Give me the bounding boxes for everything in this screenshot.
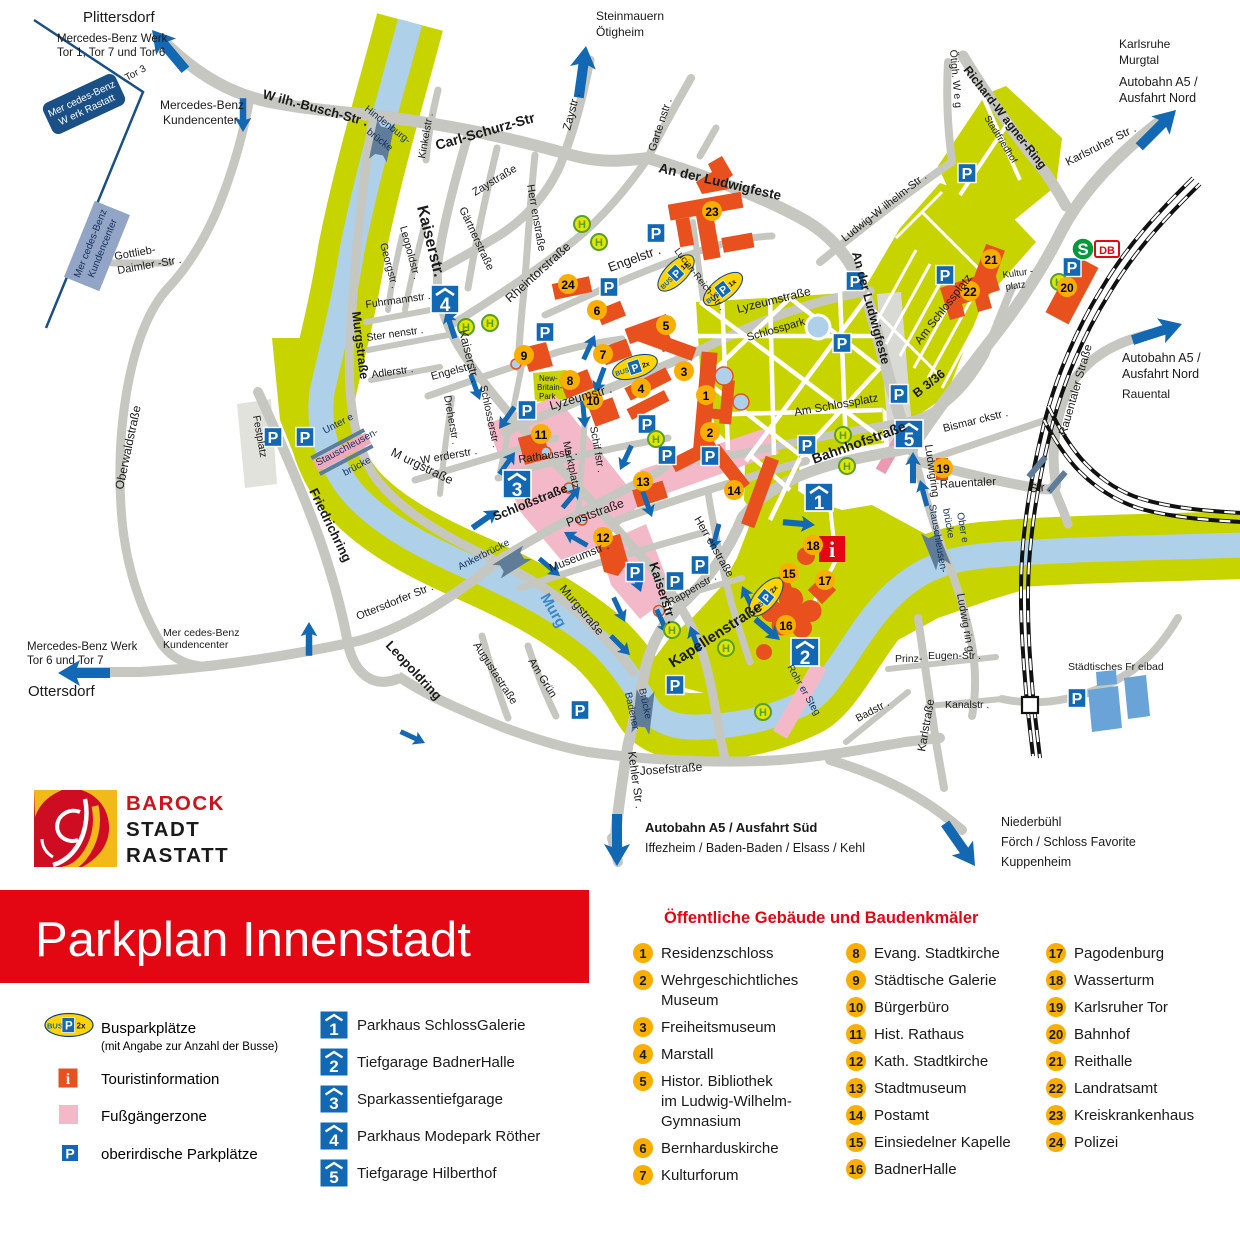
svg-text:Mer cedes-Benz: Mer cedes-Benz [163, 627, 239, 639]
svg-text:Mercedes-Benz Werk: Mercedes-Benz Werk [27, 641, 138, 653]
svg-text:17: 17 [1049, 946, 1063, 961]
svg-text:3: 3 [329, 1094, 338, 1113]
svg-text:23: 23 [1049, 1108, 1063, 1123]
svg-text:8: 8 [567, 374, 574, 388]
svg-text:Pagodenburg: Pagodenburg [1074, 945, 1164, 962]
svg-text:Marstall: Marstall [661, 1046, 714, 1063]
svg-text:11: 11 [535, 428, 548, 442]
svg-text:14: 14 [849, 1108, 864, 1123]
svg-text:Bürgerbüro: Bürgerbüro [874, 999, 949, 1016]
svg-text:17: 17 [818, 574, 832, 588]
svg-text:Förch / Schloss Favorite: Förch / Schloss Favorite [1001, 835, 1136, 849]
svg-text:Karlsruher Tor: Karlsruher Tor [1074, 999, 1168, 1016]
svg-text:9: 9 [852, 973, 859, 988]
svg-text:Hist. Rathaus: Hist. Rathaus [874, 1026, 964, 1043]
svg-text:2x: 2x [77, 1022, 86, 1031]
svg-text:(mit Angabe zur Anzahl der Bus: (mit Angabe zur Anzahl der Busse) [101, 1041, 278, 1053]
svg-text:Niederbühl: Niederbühl [1001, 815, 1061, 829]
svg-text:Kanalstr .: Kanalstr . [945, 699, 989, 711]
svg-text:Kundencenter: Kundencenter [163, 639, 229, 651]
svg-text:Städtische Galerie: Städtische Galerie [874, 972, 997, 989]
svg-text:Ausfahrt Nord: Ausfahrt Nord [1119, 91, 1196, 105]
svg-text:Stadtmuseum: Stadtmuseum [874, 1080, 967, 1097]
svg-text:im Ludwig-Wilhelm-: im Ludwig-Wilhelm- [661, 1093, 792, 1110]
svg-text:1: 1 [639, 946, 646, 961]
svg-text:21: 21 [984, 253, 998, 267]
svg-text:Iffezheim / Baden-Baden / Elsa: Iffezheim / Baden-Baden / Elsass / Kehl [645, 841, 865, 855]
svg-text:Eugen-Str .: Eugen-Str . [928, 650, 981, 662]
svg-text:Kreiskrankenhaus: Kreiskrankenhaus [1074, 1107, 1194, 1124]
svg-text:Histor. Bibliothek: Histor. Bibliothek [661, 1073, 773, 1090]
svg-text:6: 6 [594, 304, 601, 318]
svg-text:13: 13 [849, 1081, 863, 1096]
svg-text:S: S [1077, 240, 1088, 259]
svg-text:i: i [829, 537, 835, 562]
svg-text:5: 5 [663, 319, 670, 333]
svg-text:9: 9 [521, 349, 528, 363]
svg-text:Parkhaus SchlossGalerie: Parkhaus SchlossGalerie [357, 1017, 525, 1034]
svg-text:Rauental: Rauental [1122, 387, 1170, 401]
svg-text:Ottersdorf: Ottersdorf [28, 683, 96, 700]
svg-text:12: 12 [849, 1054, 863, 1069]
svg-text:1: 1 [814, 493, 825, 514]
svg-text:2: 2 [639, 973, 646, 988]
svg-text:14: 14 [727, 484, 741, 498]
svg-text:Str .: Str . [1030, 482, 1052, 495]
svg-text:21: 21 [1049, 1054, 1063, 1069]
svg-text:Mercedes-Benz Werk: Mercedes-Benz Werk [57, 33, 168, 45]
svg-text:5: 5 [639, 1074, 646, 1089]
svg-text:Touristinformation: Touristinformation [101, 1071, 219, 1088]
svg-text:Postamt: Postamt [874, 1107, 930, 1124]
svg-text:Gymnasium: Gymnasium [661, 1113, 741, 1130]
svg-text:Tor 1, Tor 7 und Tor 6: Tor 1, Tor 7 und Tor 6 [57, 47, 165, 59]
svg-text:16: 16 [779, 619, 793, 633]
svg-text:Murgtal: Murgtal [1119, 53, 1159, 67]
svg-text:24: 24 [561, 278, 575, 292]
svg-text:Museum: Museum [661, 992, 719, 1009]
svg-text:Parkhaus Modepark Röther: Parkhaus Modepark Röther [357, 1128, 540, 1145]
svg-text:18: 18 [1049, 973, 1063, 988]
svg-text:5: 5 [329, 1168, 338, 1187]
svg-text:Residenzschloss: Residenzschloss [661, 945, 774, 962]
svg-text:Busparkplätze: Busparkplätze [101, 1020, 196, 1037]
svg-text:Reithalle: Reithalle [1074, 1053, 1132, 1070]
svg-text:4: 4 [329, 1131, 339, 1150]
svg-text:Autobahn A5 / Ausfahrt Süd: Autobahn A5 / Ausfahrt Süd [645, 820, 817, 835]
svg-text:Ausfahrt Nord: Ausfahrt Nord [1122, 367, 1199, 381]
svg-text:1: 1 [703, 389, 710, 403]
svg-text:Öffentliche Gebäude und Bauden: Öffentliche Gebäude und Baudenkmäler [664, 908, 979, 927]
svg-text:2: 2 [800, 648, 811, 669]
svg-text:24: 24 [1049, 1135, 1064, 1150]
svg-text:7: 7 [600, 348, 607, 362]
svg-text:BadnerHalle: BadnerHalle [874, 1161, 957, 1178]
svg-text:Prinz-: Prinz- [895, 653, 923, 665]
svg-text:1: 1 [329, 1020, 338, 1039]
svg-text:Plittersdorf: Plittersdorf [83, 9, 156, 26]
svg-text:4: 4 [639, 1047, 647, 1062]
svg-text:Parkplan Innenstadt: Parkplan Innenstadt [35, 913, 471, 967]
svg-text:Einsiedelner Kapelle: Einsiedelner Kapelle [874, 1134, 1011, 1151]
svg-text:Bernharduskirche: Bernharduskirche [661, 1140, 779, 1157]
svg-text:2: 2 [707, 426, 714, 440]
svg-text:STADT: STADT [126, 818, 200, 841]
svg-text:Kuppenheim: Kuppenheim [1001, 855, 1071, 869]
svg-text:3: 3 [639, 1020, 646, 1035]
svg-text:Landratsamt: Landratsamt [1074, 1080, 1158, 1097]
svg-text:BAROCK: BAROCK [126, 792, 225, 815]
svg-text:P: P [65, 1021, 73, 1033]
svg-text:7: 7 [639, 1168, 646, 1183]
svg-text:18: 18 [806, 539, 820, 553]
svg-text:13: 13 [636, 475, 650, 489]
svg-text:Sparkassentiefgarage: Sparkassentiefgarage [357, 1091, 503, 1108]
svg-text:20: 20 [1060, 281, 1074, 295]
svg-text:4: 4 [440, 295, 451, 316]
svg-text:20: 20 [1049, 1027, 1063, 1042]
svg-text:11: 11 [849, 1027, 863, 1042]
svg-text:2: 2 [329, 1057, 338, 1076]
svg-text:Polizei: Polizei [1074, 1134, 1118, 1151]
svg-text:Kulturforum: Kulturforum [661, 1167, 739, 1184]
svg-text:Autobahn A5 /: Autobahn A5 / [1119, 75, 1198, 89]
svg-text:New-: New- [539, 374, 558, 383]
svg-text:Autobahn A5 /: Autobahn A5 / [1122, 351, 1201, 365]
svg-text:23: 23 [705, 205, 719, 219]
svg-text:16: 16 [849, 1162, 863, 1177]
svg-text:Park: Park [539, 392, 556, 401]
svg-text:DB: DB [1099, 245, 1115, 257]
svg-text:i: i [66, 1071, 71, 1088]
svg-text:15: 15 [849, 1135, 863, 1150]
svg-text:Karlsruhe: Karlsruhe [1119, 37, 1171, 51]
svg-text:Britain-: Britain- [537, 383, 563, 392]
svg-text:Mercedes-Benz: Mercedes-Benz [160, 98, 244, 112]
svg-text:Ötigheim: Ötigheim [596, 25, 644, 39]
svg-text:Kath. Stadtkirche: Kath. Stadtkirche [874, 1053, 988, 1070]
svg-text:15: 15 [782, 567, 796, 581]
svg-text:Kundencenter: Kundencenter [163, 113, 238, 127]
svg-text:Tiefgarage BadnerHalle: Tiefgarage BadnerHalle [357, 1054, 515, 1071]
svg-text:8: 8 [852, 946, 859, 961]
svg-text:Städtisches Fr eibad: Städtisches Fr eibad [1068, 661, 1164, 673]
svg-text:BUS: BUS [47, 1022, 63, 1031]
svg-text:RASTATT: RASTATT [126, 844, 229, 867]
svg-text:Evang. Stadtkirche: Evang. Stadtkirche [874, 945, 1000, 962]
svg-text:Freiheitsmuseum: Freiheitsmuseum [661, 1019, 776, 1036]
svg-text:19: 19 [1049, 1000, 1063, 1015]
svg-text:4: 4 [638, 382, 645, 396]
svg-text:Steinmauern: Steinmauern [596, 9, 664, 23]
svg-text:Bahnhof: Bahnhof [1074, 1026, 1131, 1043]
svg-text:P: P [65, 1146, 74, 1162]
svg-text:6: 6 [639, 1141, 646, 1156]
svg-text:Wehrgeschichtliches: Wehrgeschichtliches [661, 972, 798, 989]
svg-text:oberirdische Parkplätze: oberirdische Parkplätze [101, 1146, 258, 1163]
svg-text:Tiefgarage Hilberthof: Tiefgarage Hilberthof [357, 1165, 497, 1182]
svg-text:Wasserturm: Wasserturm [1074, 972, 1154, 989]
svg-text:Fußgängerzone: Fußgängerzone [101, 1108, 207, 1125]
svg-text:Tor 6 und Tor 7: Tor 6 und Tor 7 [27, 655, 104, 667]
svg-text:3: 3 [681, 365, 688, 379]
svg-text:22: 22 [1049, 1081, 1063, 1096]
svg-text:10: 10 [849, 1000, 863, 1015]
